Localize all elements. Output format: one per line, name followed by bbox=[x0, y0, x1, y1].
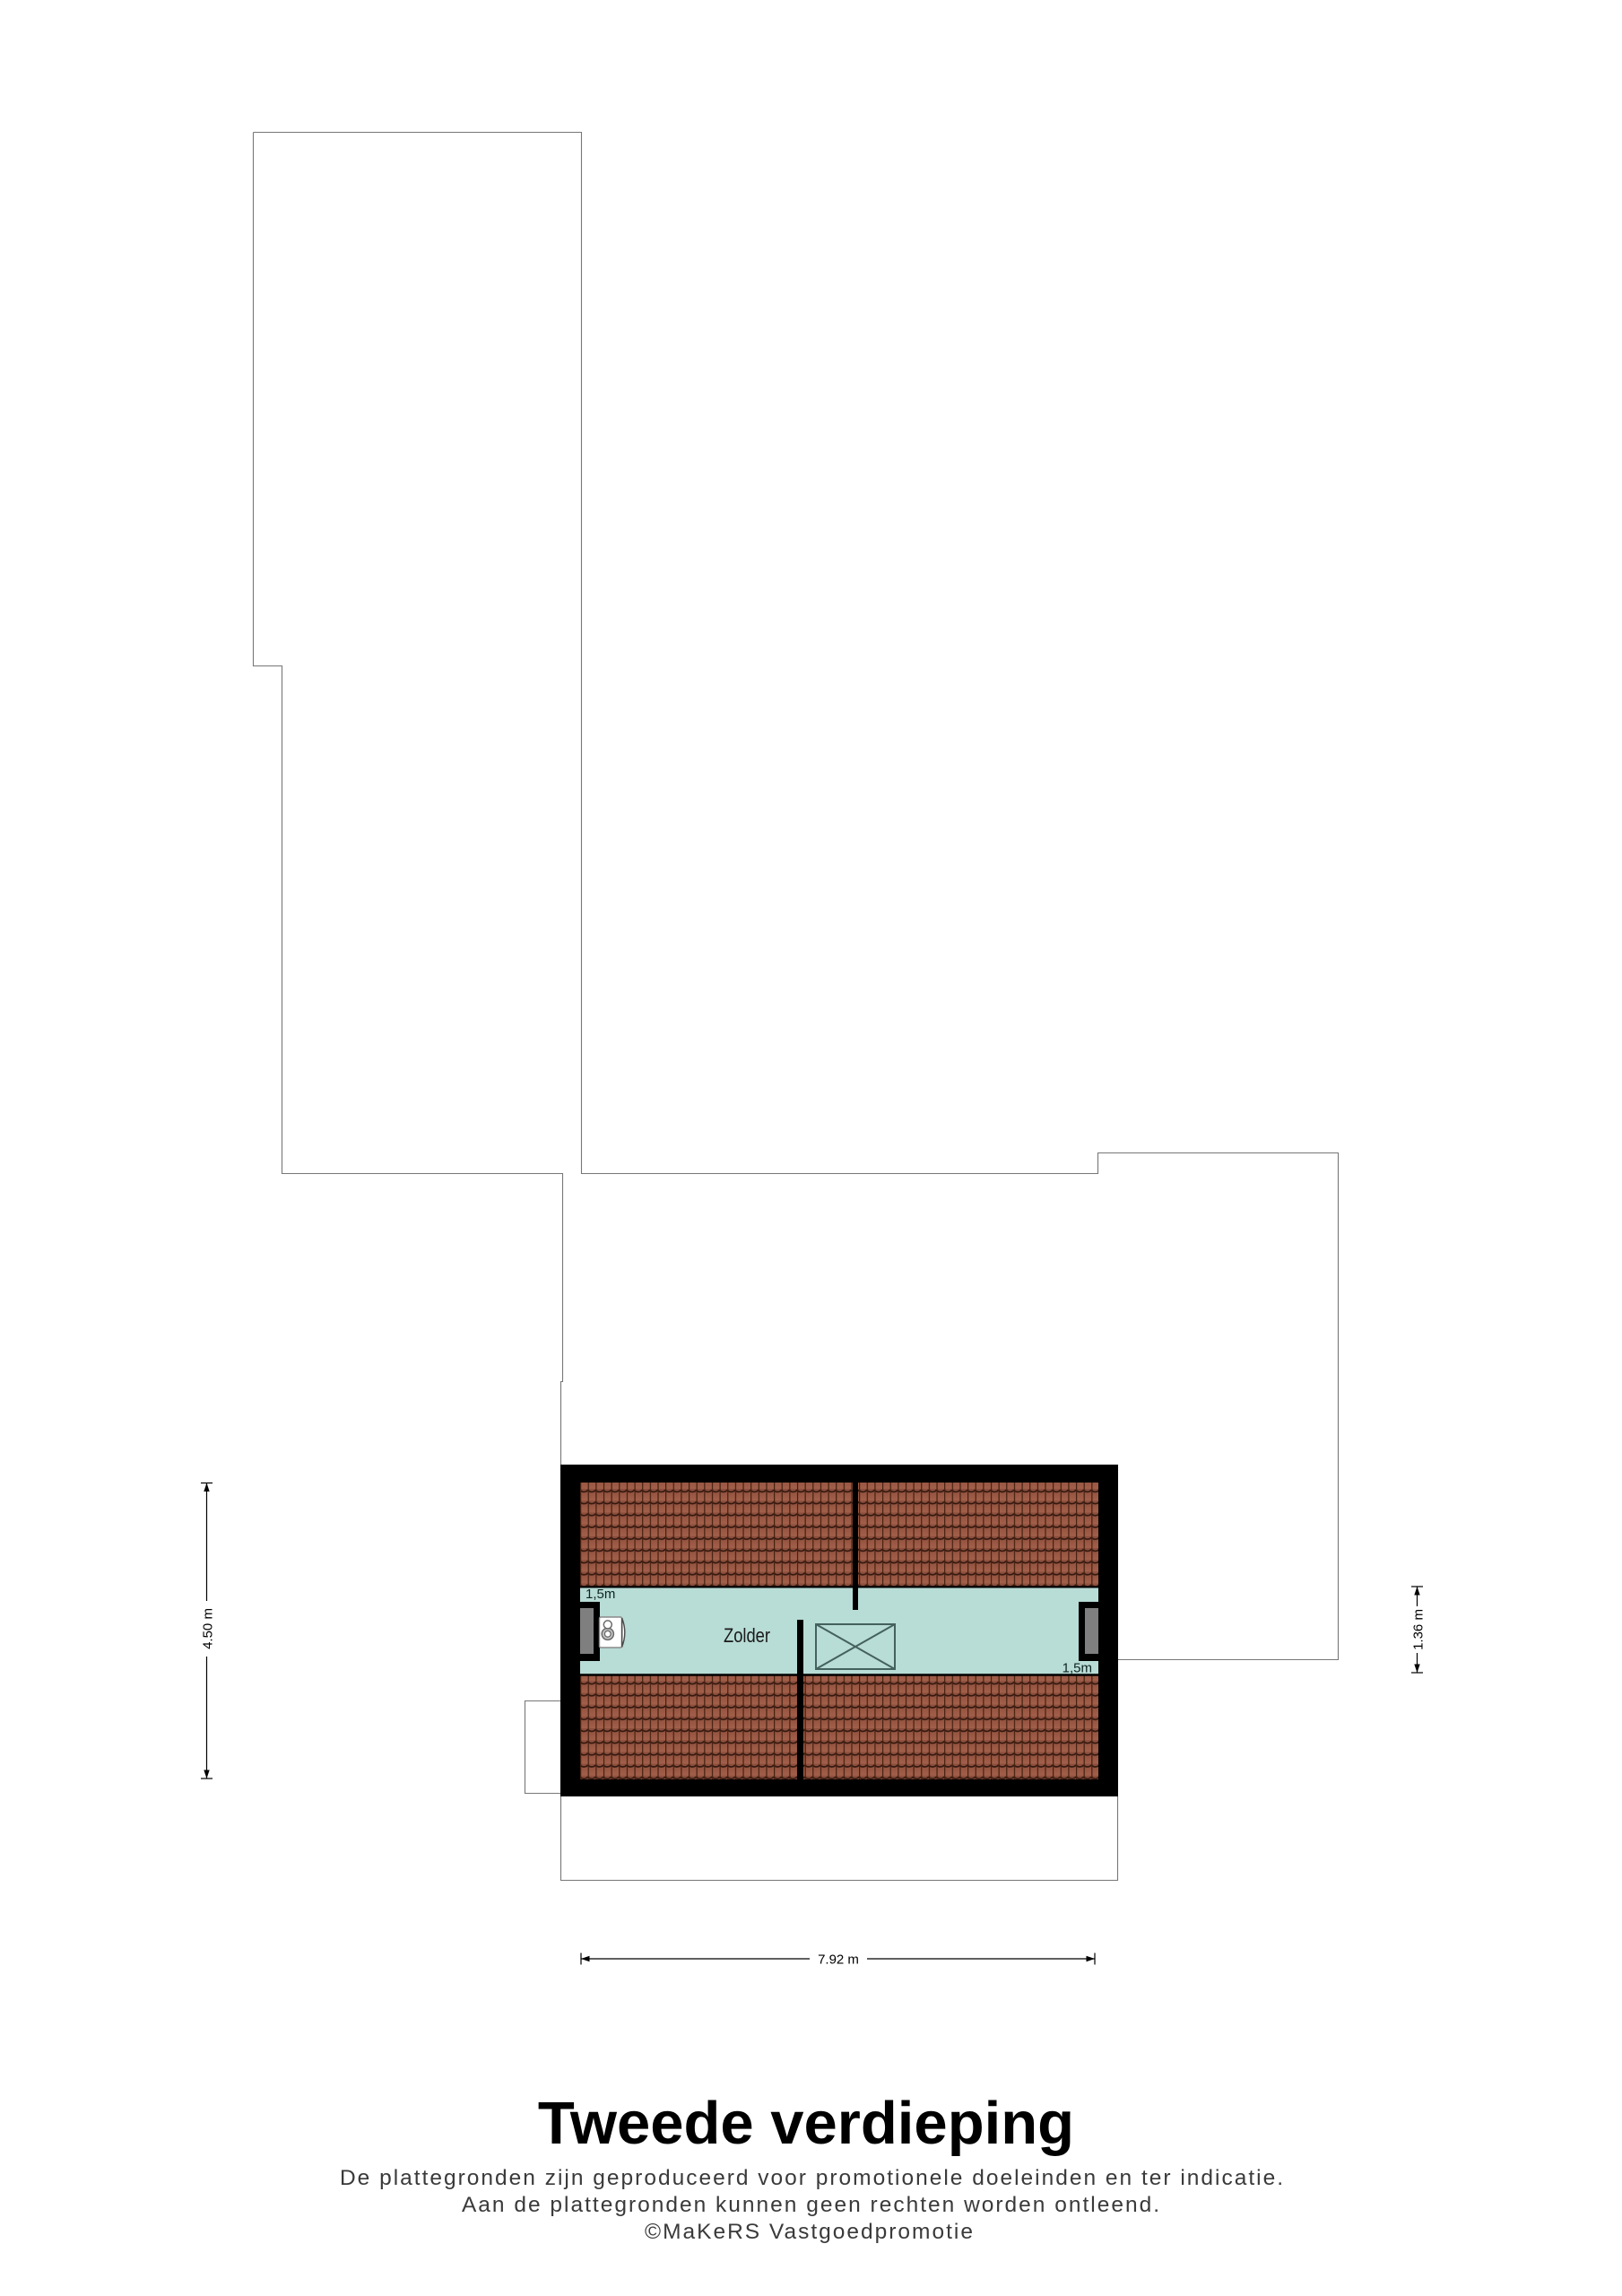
svg-text:1.36 m: 1.36 m bbox=[1411, 1609, 1427, 1650]
svg-text:Zolder: Zolder bbox=[724, 1624, 770, 1647]
svg-text:1,5m: 1,5m bbox=[585, 1587, 615, 1602]
svg-text:1,5m: 1,5m bbox=[1063, 1661, 1092, 1676]
svg-text:Tweede verdieping: Tweede verdieping bbox=[538, 2090, 1074, 2157]
svg-text:©MaKeRS Vastgoedpromotie: ©MaKeRS Vastgoedpromotie bbox=[645, 2220, 975, 2244]
svg-text:Aan de plattegronden kunnen ge: Aan de plattegronden kunnen geen rechten… bbox=[462, 2193, 1161, 2217]
svg-text:7.92 m: 7.92 m bbox=[818, 1952, 859, 1968]
svg-text:4.50 m: 4.50 m bbox=[201, 1608, 216, 1649]
svg-text:De plattegronden zijn geproduc: De plattegronden zijn geproduceerd voor … bbox=[340, 2166, 1285, 2190]
